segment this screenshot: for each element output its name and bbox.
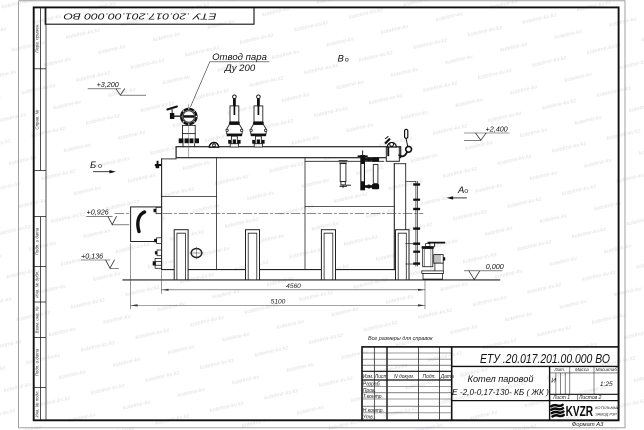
svg-text:Лист: Лист (374, 374, 388, 380)
svg-text:Инв. № подл.: Инв. № подл. (35, 390, 40, 417)
svg-text:5100: 5100 (271, 299, 286, 306)
svg-text:+0,136: +0,136 (81, 252, 103, 261)
svg-text:А: А (457, 185, 464, 196)
svg-text:Изм.: Изм. (363, 374, 374, 380)
svg-text:Н.контр.: Н.контр. (363, 408, 384, 414)
svg-text:Лит.: Лит. (553, 367, 565, 372)
svg-text:+0,926: +0,926 (87, 208, 109, 217)
svg-text:0,000: 0,000 (486, 262, 504, 271)
svg-text:Подп. и дата: Подп. и дата (35, 227, 40, 255)
svg-text:Разраб.: Разраб. (363, 382, 381, 388)
svg-text:Перв. примен.: Перв. примен. (35, 24, 40, 53)
svg-text:Дата: Дата (440, 374, 454, 380)
svg-text:+3,200: +3,200 (97, 80, 119, 89)
svg-text:Котел паровой: Котел паровой (468, 374, 534, 384)
svg-text:Масштаб: Масштаб (596, 367, 618, 372)
svg-text:+2,400: +2,400 (486, 125, 508, 134)
svg-text:КОТЕЛЬНЫЙ: КОТЕЛЬНЫЙ (595, 405, 620, 410)
svg-text:Ду 200: Ду 200 (224, 63, 256, 74)
svg-text:KVZR: KVZR (566, 403, 594, 420)
svg-text:Т.контр.: Т.контр. (363, 394, 383, 400)
svg-text:4560: 4560 (286, 283, 301, 290)
svg-text:ЕТУ .20.017.201.00.000 ВО: ЕТУ .20.017.201.00.000 ВО (63, 12, 216, 22)
svg-text:Взам. инв. №: Взам. инв. № (35, 306, 40, 333)
svg-text:Пров.: Пров. (363, 388, 376, 394)
svg-text:Инв. № дубл.: Инв. № дубл. (35, 271, 40, 298)
svg-text:Подп.: Подп. (423, 374, 436, 380)
svg-text:1:25: 1:25 (600, 381, 613, 388)
svg-text:Утв.: Утв. (363, 415, 374, 421)
svg-text:ЕТУ .20.017.201.00.000 ВО: ЕТУ .20.017.201.00.000 ВО (480, 351, 610, 366)
svg-text:Масса: Масса (575, 367, 589, 372)
svg-text:В: В (338, 54, 345, 65)
svg-text:И: И (551, 378, 556, 385)
svg-text:Подп. и дата: Подп. и дата (35, 348, 40, 376)
svg-text:ЗАВОД РЗР: ЗАВОД РЗР (595, 411, 617, 416)
svg-text:Е -2,0-0,17-130- КБ ( ЖК ): Е -2,0-0,17-130- КБ ( ЖК ) (452, 388, 549, 397)
svg-text:Б: Б (90, 160, 96, 171)
svg-text:Формат А3: Формат А3 (572, 422, 604, 428)
svg-text:Справ. №: Справ. № (35, 109, 40, 129)
svg-text:Все размеры для справок: Все размеры для справок (368, 336, 433, 342)
svg-text:N докум.: N докум. (394, 374, 414, 380)
